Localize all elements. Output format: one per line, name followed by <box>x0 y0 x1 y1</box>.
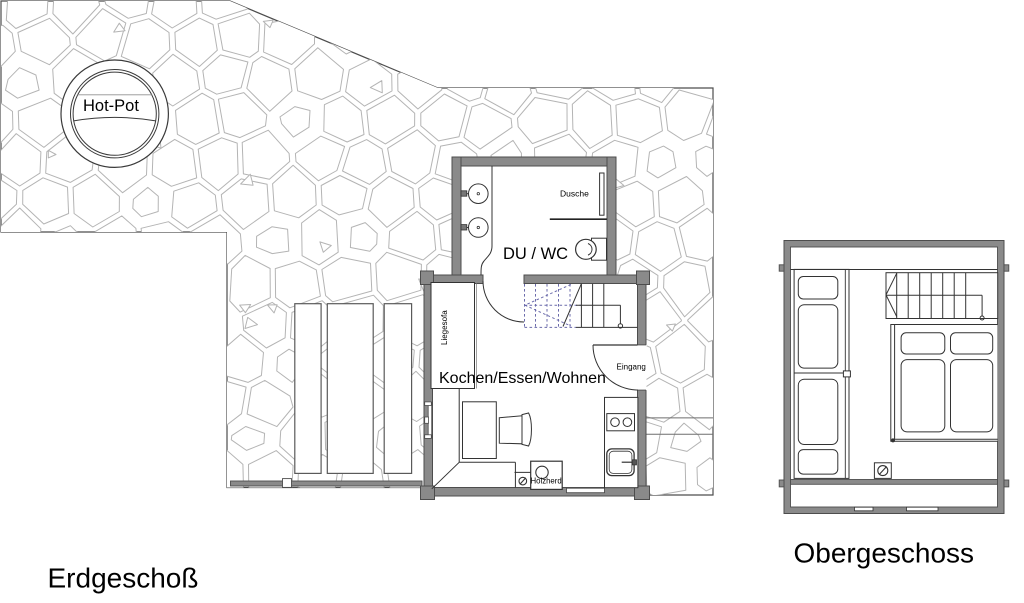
svg-text:Erdgeschoß: Erdgeschoß <box>48 563 199 594</box>
svg-text:Dusche: Dusche <box>560 189 589 199</box>
svg-text:Hot-Pot: Hot-Pot <box>83 97 139 115</box>
svg-text:Obergeschoss: Obergeschoss <box>794 538 975 569</box>
svg-text:DU / WC: DU / WC <box>503 245 568 263</box>
svg-text:Eingang: Eingang <box>617 362 646 371</box>
svg-text:Holzherd: Holzherd <box>531 476 562 485</box>
svg-text:Kochen/Essen/Wohnen: Kochen/Essen/Wohnen <box>439 370 606 387</box>
svg-text:Liegesofa: Liegesofa <box>440 310 449 345</box>
